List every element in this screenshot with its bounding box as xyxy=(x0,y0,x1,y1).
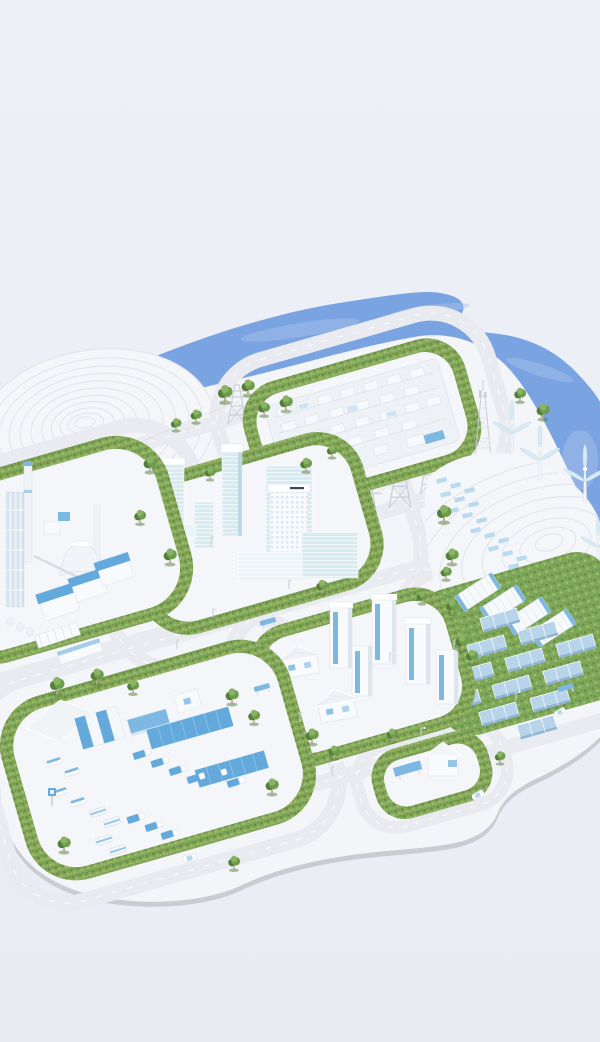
apartment-tower xyxy=(352,646,372,696)
apartment-tower xyxy=(405,618,431,684)
apartment-tower xyxy=(329,602,353,668)
apartment-tower xyxy=(436,650,458,704)
rooftop-detail xyxy=(290,487,304,489)
storage-tank xyxy=(26,628,34,636)
illustration-canvas xyxy=(0,0,600,1042)
storage-tank xyxy=(16,623,24,631)
smart-city-3d-scene xyxy=(0,0,600,1042)
storage-tank xyxy=(6,618,14,626)
chimney xyxy=(24,462,32,562)
